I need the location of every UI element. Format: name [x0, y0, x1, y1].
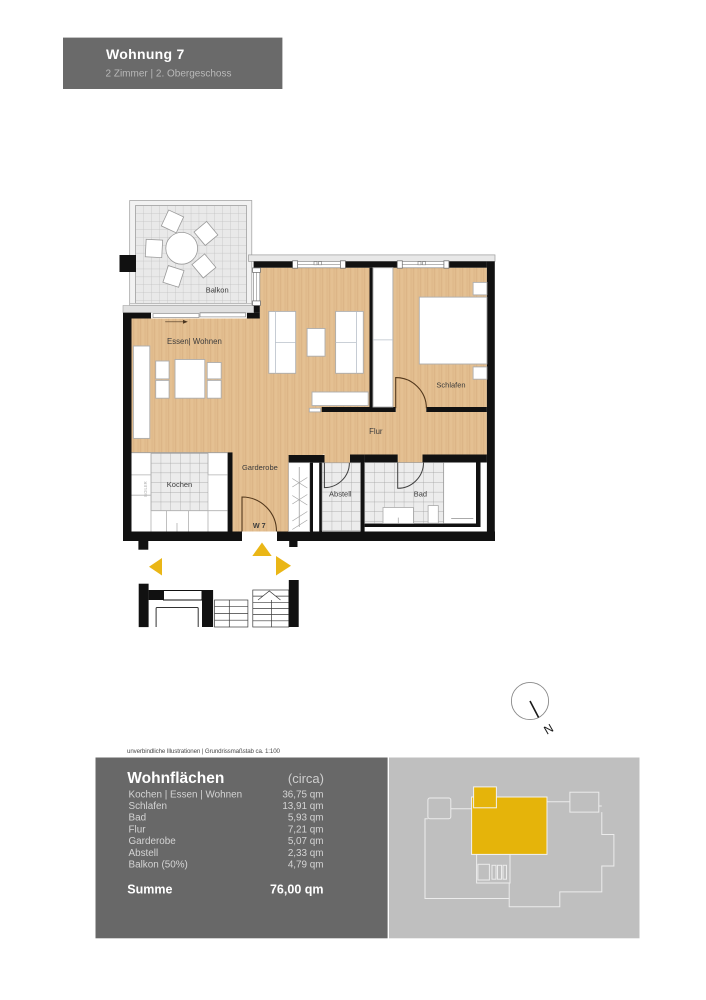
svg-text:W 7: W 7 [253, 521, 266, 530]
svg-text:5,07 qm: 5,07 qm [288, 836, 324, 847]
svg-text:2,33 qm: 2,33 qm [288, 848, 324, 859]
svg-text:Abstell: Abstell [129, 848, 159, 859]
svg-text:BOILER: BOILER [143, 481, 148, 496]
svg-text:Kochen | Essen | Wohnen: Kochen | Essen | Wohnen [129, 789, 243, 800]
svg-text:2 Zimmer | 2. Obergeschoss: 2 Zimmer | 2. Obergeschoss [106, 69, 232, 80]
svg-text:N: N [541, 721, 556, 737]
svg-text:Flur: Flur [369, 427, 383, 436]
svg-text:13,91 qm: 13,91 qm [282, 801, 323, 812]
svg-text:Garderobe: Garderobe [129, 836, 177, 847]
svg-text:Bad: Bad [129, 813, 147, 824]
svg-text:Balkon: Balkon [206, 286, 229, 295]
svg-text:4,79 qm: 4,79 qm [288, 860, 324, 871]
svg-text:unverbindliche Illustrationen: unverbindliche Illustrationen | Grundris… [127, 748, 281, 755]
svg-text:(circa): (circa) [288, 771, 324, 786]
svg-text:36,75 qm: 36,75 qm [282, 789, 323, 800]
svg-text:76,00 qm: 76,00 qm [270, 883, 324, 897]
svg-text:5,93 qm: 5,93 qm [288, 813, 324, 824]
svg-text:Wohnflächen: Wohnflächen [127, 770, 224, 787]
svg-text:7,21 qm: 7,21 qm [288, 824, 324, 835]
svg-text:Bad: Bad [414, 489, 427, 498]
svg-text:Wohnung 7: Wohnung 7 [106, 46, 185, 62]
svg-text:Schlafen: Schlafen [129, 801, 167, 812]
svg-text:Essen| Wohnen: Essen| Wohnen [167, 337, 222, 346]
svg-text:Flur: Flur [129, 824, 147, 835]
svg-text:Garderobe: Garderobe [242, 463, 278, 472]
svg-text:Schlafen: Schlafen [436, 381, 465, 390]
svg-text:Balkon (50%): Balkon (50%) [129, 860, 188, 871]
svg-text:Abstell: Abstell [329, 489, 352, 498]
svg-text:Kochen: Kochen [167, 480, 192, 489]
svg-text:Summe: Summe [127, 883, 172, 897]
